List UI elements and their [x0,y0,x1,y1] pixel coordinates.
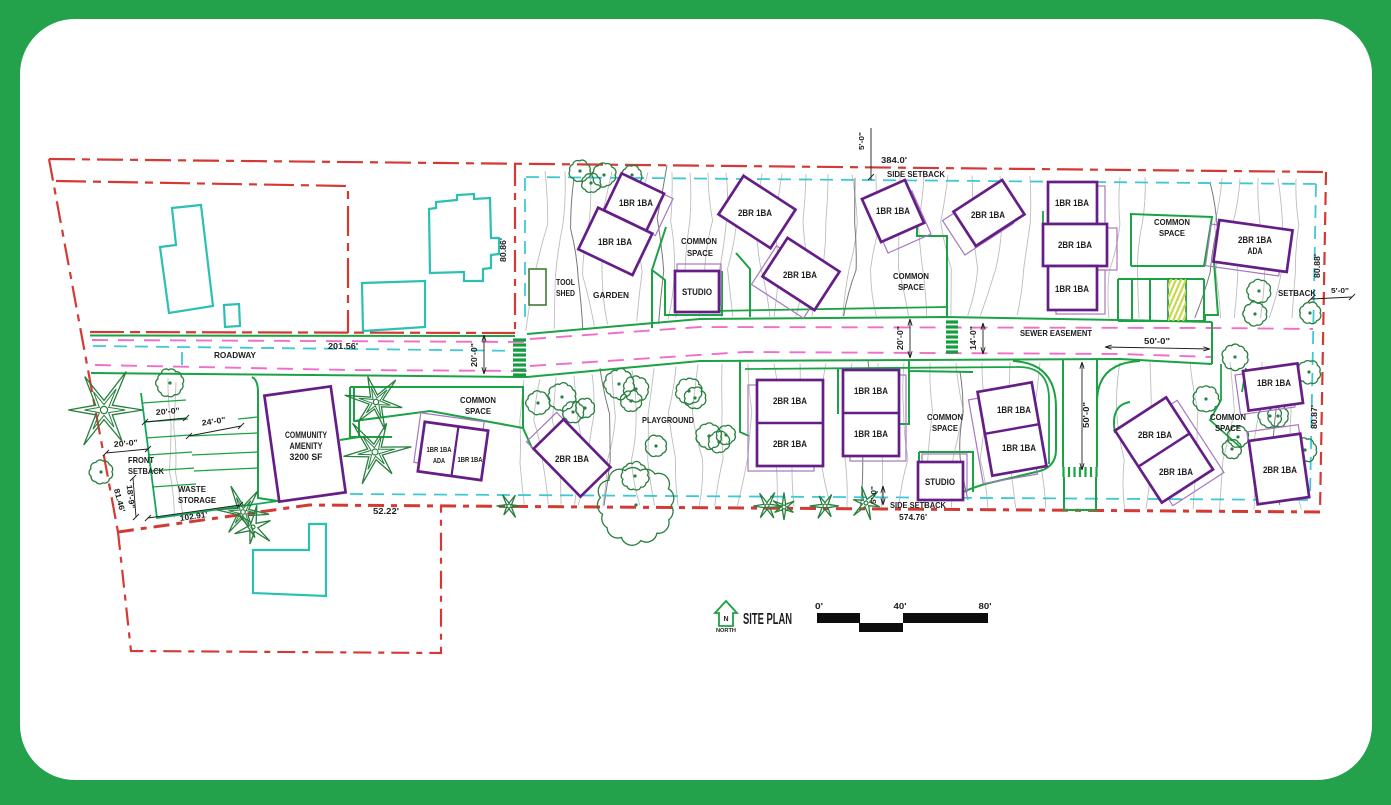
svg-text:ADA: ADA [1248,246,1263,257]
svg-text:20'-0": 20'-0" [896,326,905,350]
svg-text:1BR 1BA: 1BR 1BA [854,386,888,397]
svg-text:SITE PLAN: SITE PLAN [743,611,792,628]
svg-text:2BR 1BA: 2BR 1BA [1159,467,1193,478]
svg-text:PLAYGROUND: PLAYGROUND [642,415,694,425]
svg-text:1BR 1BA: 1BR 1BA [997,405,1031,416]
svg-text:1BR 1BA: 1BR 1BA [1002,443,1036,454]
svg-text:2BR 1BA: 2BR 1BA [1058,240,1092,251]
svg-text:2BR 1BA: 2BR 1BA [783,270,817,281]
svg-text:1BR 1BA: 1BR 1BA [598,237,632,248]
svg-text:1BR 1BA: 1BR 1BA [1055,284,1089,295]
svg-text:2BR 1BA: 2BR 1BA [1263,465,1297,476]
svg-text:SPACE: SPACE [898,282,924,292]
svg-text:COMMUNITY: COMMUNITY [285,430,327,440]
svg-text:SIDE SETBACK: SIDE SETBACK [887,169,946,179]
svg-text:5'-0": 5'-0" [1331,286,1349,295]
svg-text:SHED: SHED [556,289,575,298]
svg-text:ROADWAY: ROADWAY [214,350,256,360]
svg-text:40': 40' [894,601,907,611]
svg-text:SPACE: SPACE [1159,228,1185,238]
svg-text:COMMON: COMMON [1154,217,1190,227]
svg-text:201.56': 201.56' [328,341,358,351]
svg-text:2BR 1BA: 2BR 1BA [971,210,1005,221]
svg-text:1BR 1BA: 1BR 1BA [876,206,910,217]
svg-text:SETBACK: SETBACK [128,466,165,476]
svg-text:574.76': 574.76' [899,513,927,522]
svg-text:SIDE SETBACK: SIDE SETBACK [890,500,947,510]
svg-text:2BR 1BA: 2BR 1BA [773,439,807,450]
svg-text:2BR 1BA: 2BR 1BA [773,396,807,407]
svg-text:80.87': 80.87' [1310,405,1319,429]
svg-text:SPACE: SPACE [465,406,491,416]
svg-text:N: N [723,616,728,623]
svg-text:1BR 1BA: 1BR 1BA [458,455,483,464]
svg-text:80.86': 80.86' [499,238,508,262]
svg-text:1BR 1BA: 1BR 1BA [619,198,653,209]
svg-text:1BR 1BA: 1BR 1BA [854,429,888,440]
svg-text:2BR 1BA: 2BR 1BA [555,454,589,465]
svg-text:384.0': 384.0' [881,155,907,165]
svg-text:20'-0": 20'-0" [470,343,479,367]
svg-text:SPACE: SPACE [932,423,958,433]
svg-text:WASTE: WASTE [178,484,206,494]
svg-text:SEWER EASEMENT: SEWER EASEMENT [1020,328,1093,338]
svg-text:52.22': 52.22' [373,506,399,516]
svg-text:50'-0": 50'-0" [1144,336,1170,346]
svg-text:SETBACK: SETBACK [1278,288,1317,298]
svg-text:14'-0": 14'-0" [969,326,978,350]
svg-text:AMENITY: AMENITY [290,441,323,451]
svg-text:2BR 1BA: 2BR 1BA [1238,235,1272,246]
svg-text:5'-0": 5'-0" [869,486,878,504]
svg-text:COMMON: COMMON [927,412,963,422]
svg-text:SPACE: SPACE [687,248,713,258]
svg-text:STUDIO: STUDIO [682,287,712,298]
svg-text:COMMON: COMMON [460,395,496,405]
svg-text:5'-0": 5'-0" [857,132,866,150]
svg-text:0': 0' [815,601,823,611]
svg-text:TOOL: TOOL [556,278,575,287]
svg-text:STORAGE: STORAGE [178,495,216,505]
svg-text:1BR 1BA: 1BR 1BA [1257,378,1291,389]
svg-text:FRONT: FRONT [128,455,155,465]
svg-text:2BR 1BA: 2BR 1BA [1138,430,1172,441]
svg-text:COMMON: COMMON [893,271,929,281]
svg-text:GARDEN: GARDEN [593,290,629,300]
svg-text:50'-0": 50'-0" [1082,402,1091,428]
svg-text:COMMON: COMMON [1210,412,1246,422]
svg-text:SPACE: SPACE [1215,423,1241,433]
svg-text:1BR 1BA: 1BR 1BA [427,445,452,454]
svg-text:STUDIO: STUDIO [925,477,955,488]
svg-text:80.88': 80.88' [1313,254,1322,278]
svg-text:ADA: ADA [433,456,445,465]
svg-text:COMMON: COMMON [681,236,717,246]
svg-text:NORTH: NORTH [716,628,736,634]
svg-text:2BR 1BA: 2BR 1BA [738,208,772,219]
svg-text:3200 SF: 3200 SF [290,452,323,462]
svg-text:80': 80' [979,601,992,611]
svg-text:1BR 1BA: 1BR 1BA [1055,198,1089,209]
